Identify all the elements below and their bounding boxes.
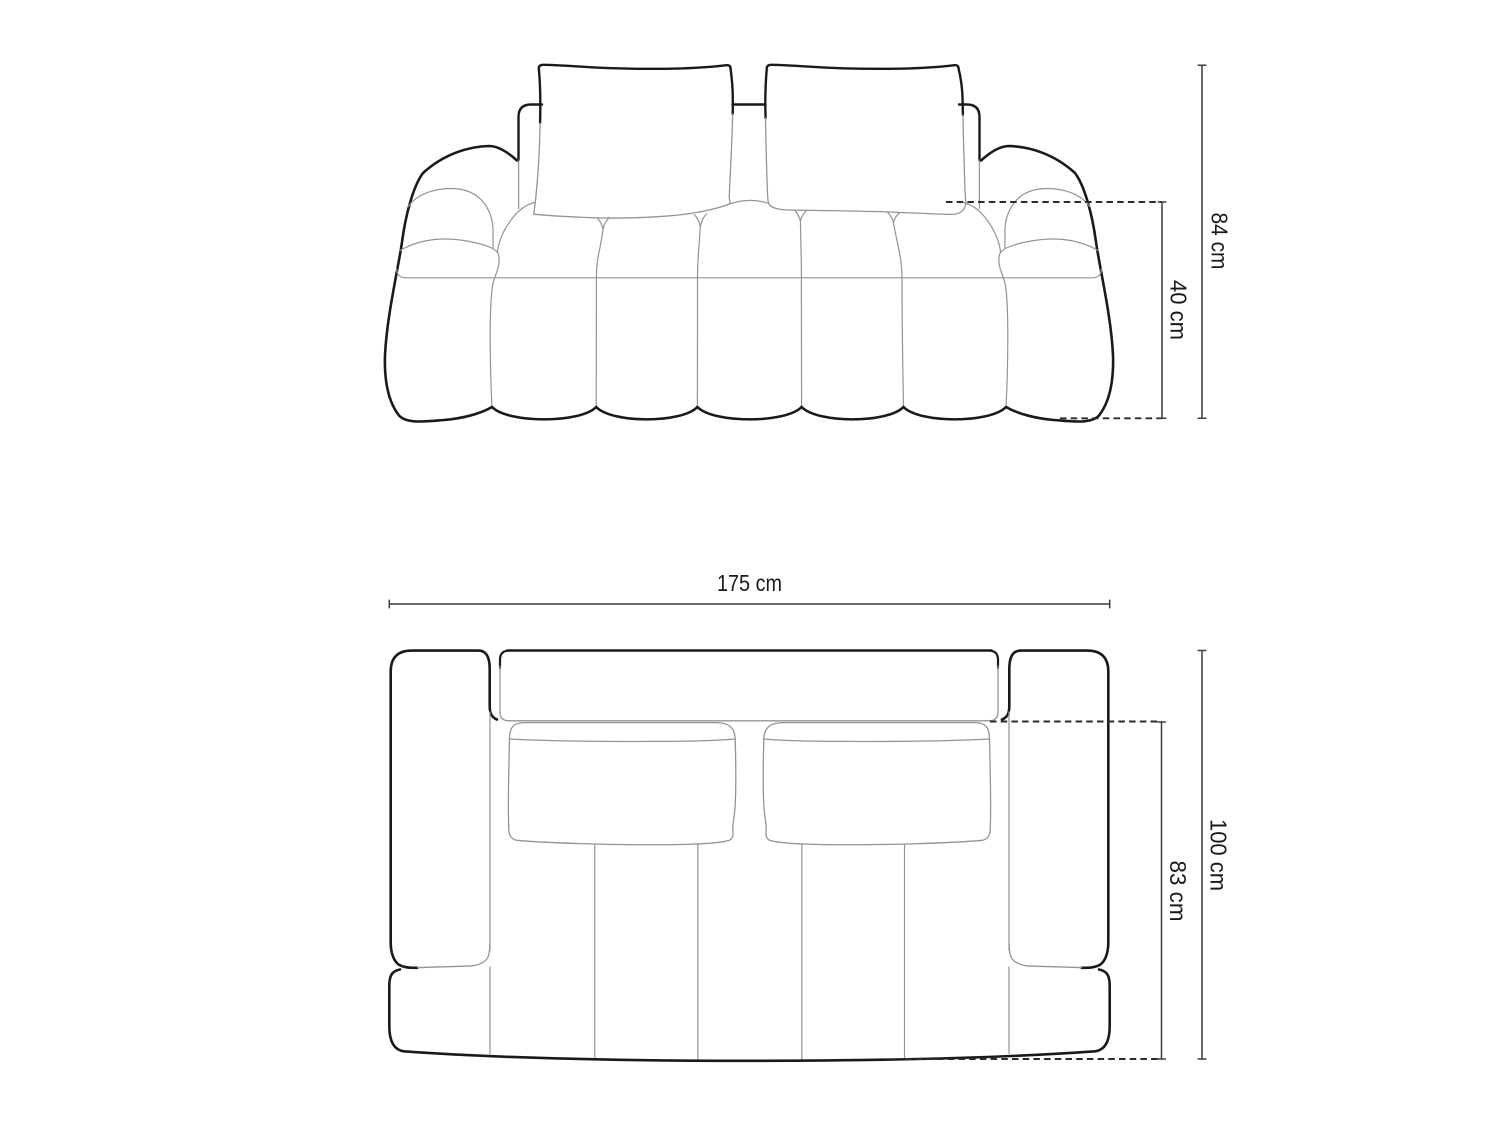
svg-text:175 cm: 175 cm	[717, 570, 782, 596]
svg-text:84 cm: 84 cm	[1207, 213, 1233, 270]
svg-text:83 cm: 83 cm	[1165, 861, 1191, 922]
svg-text:100 cm: 100 cm	[1206, 819, 1232, 891]
svg-text:40 cm: 40 cm	[1166, 280, 1192, 340]
